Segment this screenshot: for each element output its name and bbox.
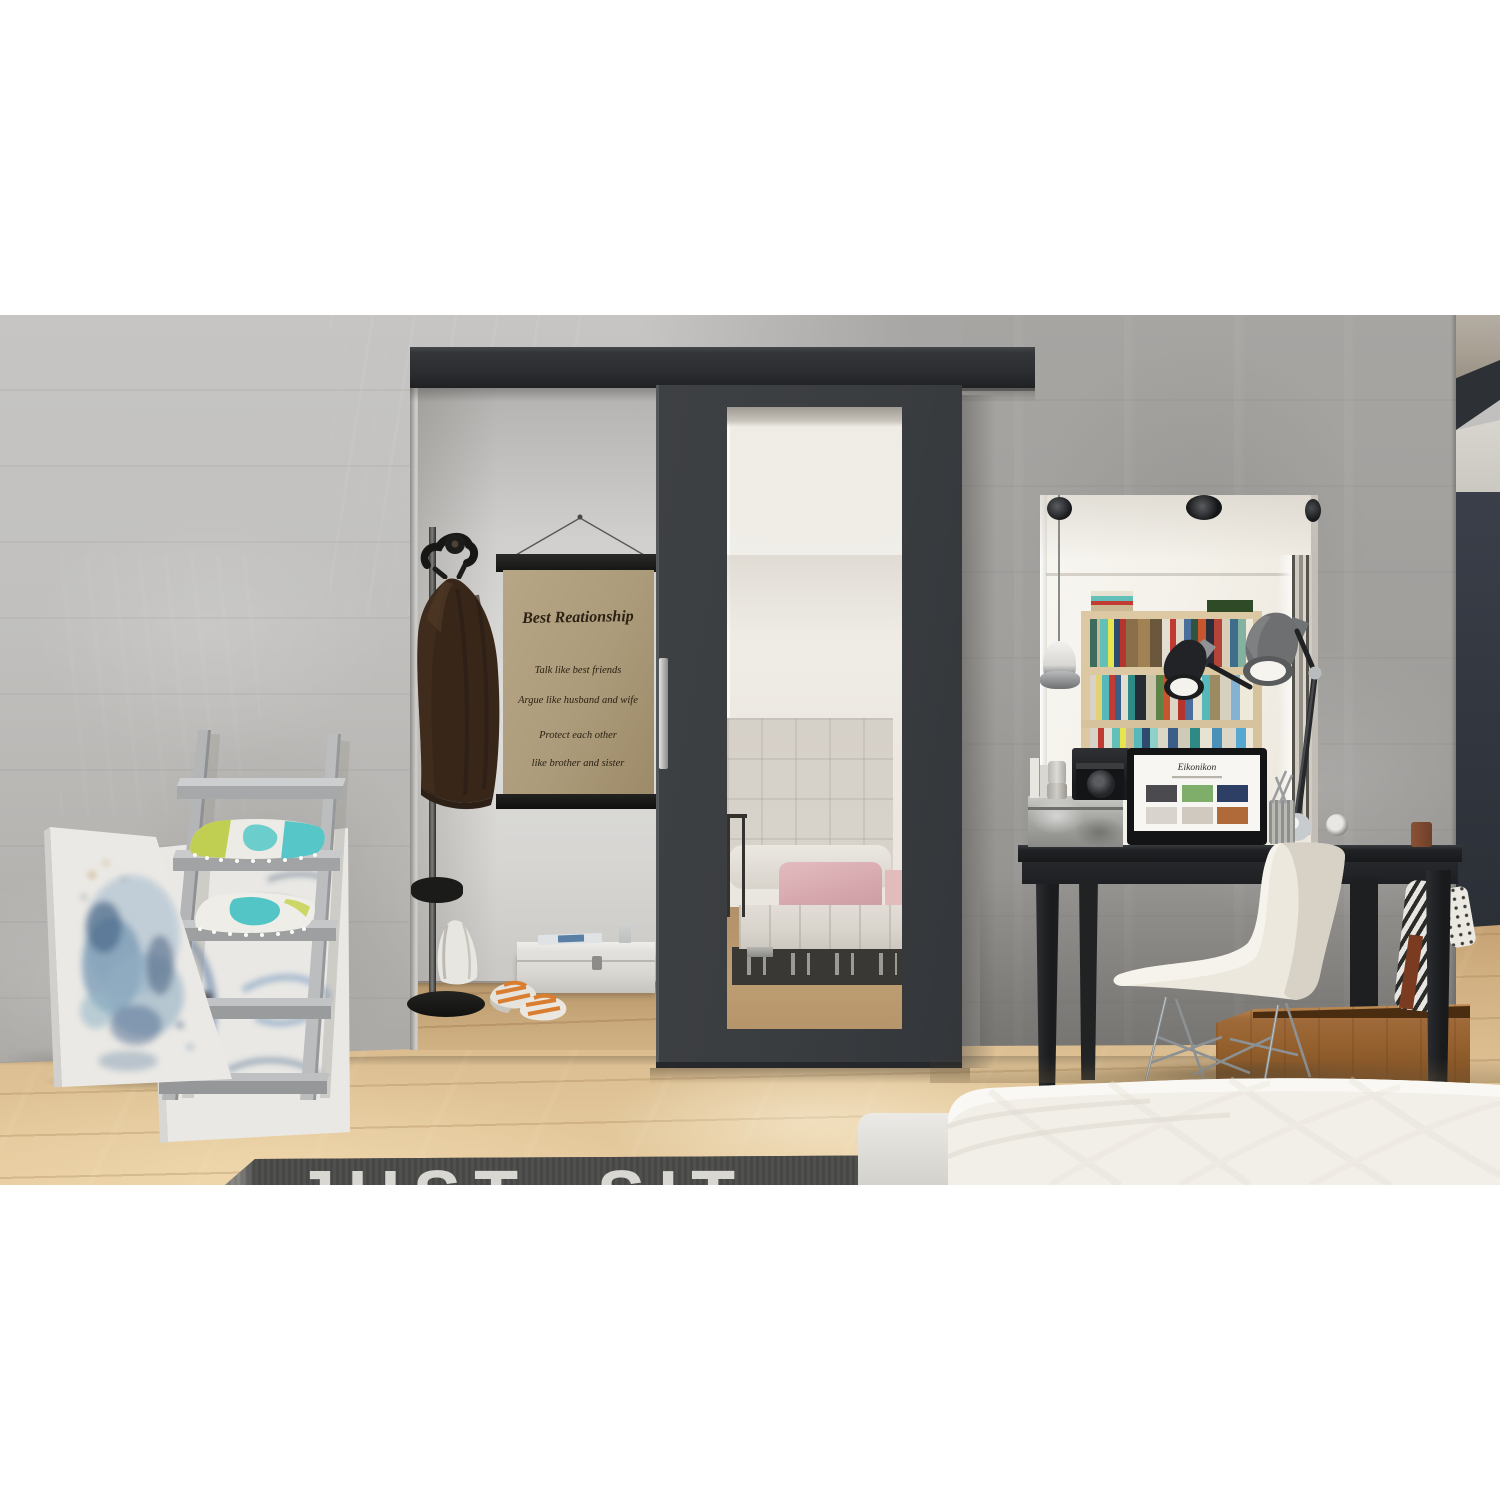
svg-text:JUST SIT: JUST SIT [295, 1157, 748, 1185]
svg-text:Argue like husband and wife: Argue like husband and wife [517, 695, 638, 706]
svg-text:Talk like best friends: Talk like best friends [535, 665, 622, 676]
svg-text:Best Reationship: Best Reationship [521, 608, 634, 627]
svg-text:Protect each other: Protect each other [538, 730, 618, 741]
svg-text:Eikonikon: Eikonikon [1177, 763, 1217, 773]
svg-text:like brother and sister: like brother and sister [532, 758, 626, 769]
